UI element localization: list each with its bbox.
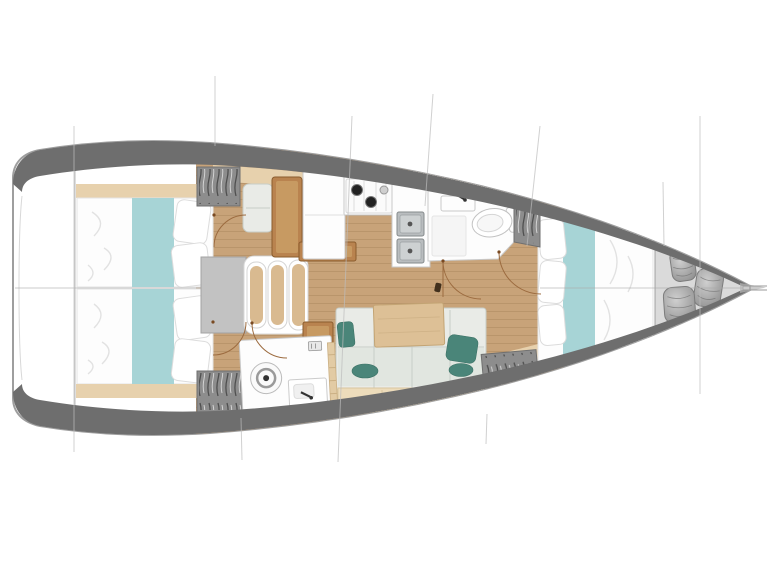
bowsprit — [740, 283, 767, 293]
aft-cabin-starboard — [76, 289, 213, 398]
vent-grille — [308, 341, 321, 351]
wardrobe-aft-starboard — [197, 371, 244, 412]
companionway-steps — [247, 260, 308, 330]
teal-cushion — [352, 364, 378, 378]
bed-runner — [132, 289, 174, 384]
yacht-floor-plan — [0, 0, 768, 576]
teal-cushion — [449, 364, 473, 377]
cabin-shelf — [76, 184, 213, 198]
aft-cabin-port — [76, 184, 213, 288]
burner — [352, 185, 363, 196]
galley-sink — [397, 212, 424, 236]
teal-cushion — [445, 334, 479, 364]
pillow — [537, 260, 567, 304]
burner — [366, 197, 377, 208]
burner — [380, 186, 388, 194]
dining-table — [373, 303, 444, 347]
shower-floor — [432, 216, 466, 256]
pillow — [537, 304, 566, 346]
bed-runner — [132, 198, 174, 287]
companionway-landing — [201, 257, 246, 333]
pillow — [537, 218, 567, 260]
wardrobe-aft-port — [197, 167, 240, 206]
cabin-shelf — [76, 384, 213, 398]
teal-cushion — [337, 321, 356, 348]
companionway — [201, 256, 308, 334]
galley-sink — [397, 239, 424, 263]
stove — [346, 179, 392, 213]
